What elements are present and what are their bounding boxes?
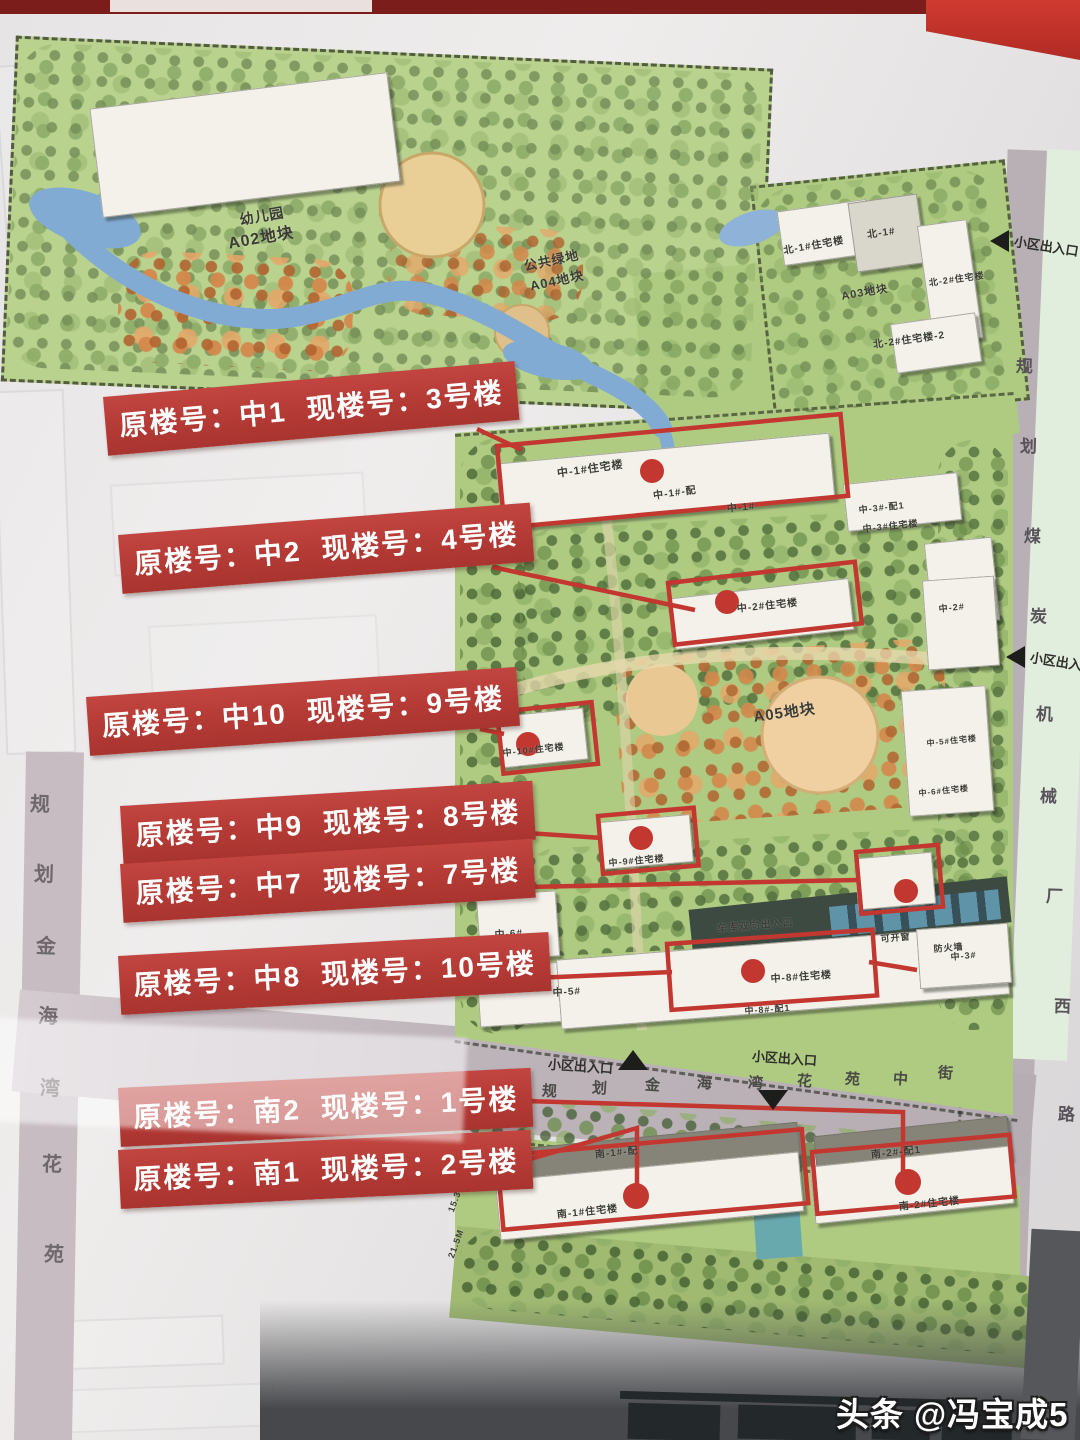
- banner-new-label: 现楼号：: [320, 953, 442, 991]
- ghost-parcel: [54, 1382, 274, 1434]
- banner-old-label: 原楼号：: [135, 813, 257, 851]
- banner-old-value: 中1: [238, 396, 288, 431]
- banner-new-label: 现楼号：: [322, 801, 444, 839]
- building-zhong-5-residential: [901, 685, 995, 817]
- road-name-char-east: 机: [1036, 700, 1054, 726]
- watermark: 头条@冯宝成5: [836, 1388, 1069, 1436]
- banner-new-value: 3号楼: [425, 377, 505, 415]
- road-name-char-east: 厂: [1046, 882, 1064, 908]
- banner-new-label: 现楼号：: [305, 384, 427, 425]
- map-label: 可开窗: [880, 929, 911, 945]
- entrance-arrow-down-icon: [758, 1090, 788, 1110]
- banner-old-value: 中10: [221, 698, 288, 733]
- photo-glare: [0, 1018, 467, 1143]
- road-name-char-middle: 街: [937, 1062, 953, 1084]
- billboard-frame-highlight: [110, 0, 372, 12]
- road-name-char-east: 规: [1016, 352, 1034, 378]
- watermark-handle: @冯宝成5: [914, 1396, 1069, 1433]
- road-name-char-middle: 海: [696, 1072, 712, 1094]
- map-label: 中-2#: [938, 599, 965, 615]
- banner-new-label: 现楼号：: [320, 1149, 441, 1186]
- map-label: 中-3#: [950, 948, 977, 963]
- road-name-char-west: 规: [30, 788, 51, 818]
- banner-new-label: 现楼号：: [322, 859, 444, 897]
- banner-old-value: 中9: [255, 810, 304, 844]
- road-name-char-middle: 金: [644, 1074, 660, 1096]
- building-right-column-a: [922, 576, 1000, 671]
- banner-new-value: 9号楼: [425, 683, 505, 719]
- map-label: 中-1#: [726, 497, 756, 515]
- road-name-char-east: 路: [1058, 1100, 1076, 1126]
- road-name-char-east: 煤: [1024, 522, 1042, 548]
- road-name-char-west: 苑: [44, 1238, 65, 1268]
- road-name-char-middle: 划: [591, 1077, 607, 1099]
- banner-new-value: 2号楼: [440, 1145, 519, 1180]
- bottom-silhouette: [628, 1403, 721, 1440]
- road-name-char-middle: 花: [796, 1070, 812, 1092]
- entrance-arrow-left-icon: [1006, 646, 1025, 668]
- banner-old-label: 原楼号：: [133, 1158, 254, 1195]
- banner-old-label: 原楼号：: [101, 703, 223, 742]
- banner-old-label: 原楼号：: [118, 400, 240, 441]
- road-name-char-west: 金: [36, 930, 57, 960]
- map-label: 中-5#: [552, 982, 581, 999]
- orange-trees: [613, 637, 954, 828]
- banner-new-value: 4号楼: [440, 519, 520, 556]
- banner-old-value: 中7: [255, 868, 304, 902]
- watermark-brand: 头条: [836, 1396, 904, 1433]
- road-name-char-west: 划: [34, 858, 55, 888]
- banner-new-label: 现楼号：: [306, 688, 428, 727]
- road-name-char-middle: 规: [541, 1080, 557, 1102]
- billboard-frame-corner: [926, 0, 1080, 60]
- banner-old-value: 中8: [253, 961, 302, 995]
- banner-old-value: 中2: [253, 536, 303, 571]
- banner-new-value: 10号楼: [440, 948, 537, 984]
- banner-old-label: 原楼号：: [133, 539, 255, 579]
- road-name-char-east: 划: [1020, 432, 1038, 458]
- orange-trees: [115, 249, 356, 373]
- road-name-char-east: 械: [1040, 782, 1058, 808]
- road-name-char-east: 西: [1054, 992, 1072, 1018]
- road-name-char-west: 花: [42, 1148, 63, 1178]
- banner-new-label: 现楼号：: [320, 525, 442, 565]
- building-zhong-7: [854, 852, 936, 911]
- entrance-arrow-up-icon: [618, 1050, 648, 1070]
- banner-old-label: 原楼号：: [133, 963, 255, 1001]
- banner-old-value: 南1: [253, 1156, 302, 1189]
- banner-old-label: 原楼号：: [135, 871, 257, 909]
- road-name-char-middle: 中: [892, 1068, 908, 1090]
- banner-new-value: 7号楼: [442, 855, 521, 891]
- site-plan-billboard-photo: 幼儿园A02地块公共绿地A04地块北-1#住宅楼北-1#A03地块北-2#住宅楼…: [0, 0, 1080, 1440]
- entrance-arrow-left-icon: [990, 230, 1009, 252]
- road-name-char-east: 炭: [1030, 602, 1048, 628]
- road-name-char-middle: 苑: [844, 1068, 860, 1090]
- ghost-parcel: [0, 389, 76, 755]
- banner-new-value: 8号楼: [442, 797, 521, 833]
